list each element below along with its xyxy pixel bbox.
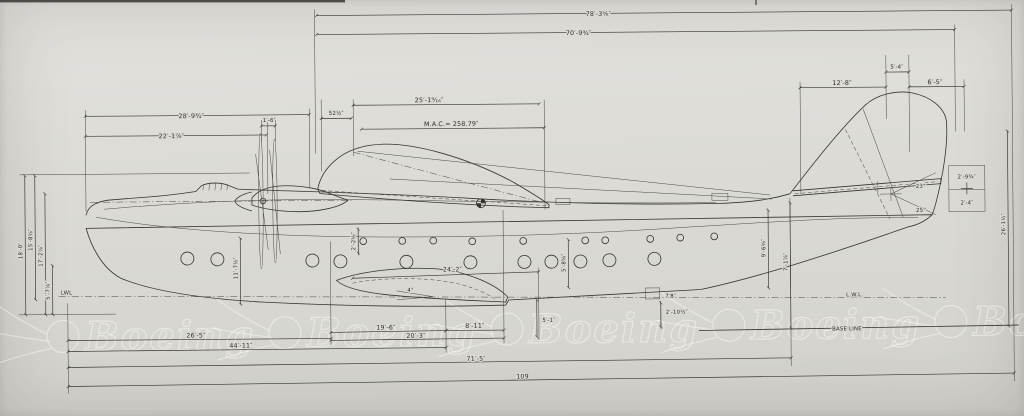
hull-chine-line: [96, 211, 918, 240]
dim-label: 2′-4″: [960, 200, 973, 206]
sponson-stub-float: [336, 268, 507, 304]
dim-label: 7′-1⅞″: [783, 253, 789, 272]
dim-root-chord: 25′-1⁹⁄₁₆″: [353, 96, 539, 105]
dim-rudder-chord: 6′-5″: [909, 79, 964, 87]
dim-left-height-15: 15′-8⅝″: [28, 176, 36, 300]
dim-label: 17′-2⅞″: [38, 245, 44, 267]
dim-fin-chord-upper: 5′-4″: [886, 64, 909, 72]
dim-hull-top: 70′-9¾″: [317, 27, 955, 39]
dim-label: 5′-1″: [542, 318, 555, 324]
deck-edge-line: [104, 196, 716, 209]
dim-label: 11′-7½″: [232, 257, 239, 279]
far-wing-leading-edge: [358, 148, 770, 198]
base-line-label: BASE LINE: [832, 326, 862, 332]
angle-label: 4°: [407, 288, 414, 294]
dim-draft: 5′-7⅞″: [45, 266, 52, 315]
dim-hull-depth-mid: 5′-8⅝″: [561, 240, 568, 288]
dim-label: 24′-2″: [443, 266, 463, 273]
dim-fin-base: 12′-8″: [800, 80, 886, 88]
aircraft-side-view: [85, 92, 948, 309]
wing-chord-line: [322, 189, 547, 208]
vertical-fin: [789, 92, 947, 216]
dim-label: 15′-8⅝″: [28, 229, 34, 251]
dim-mac: M.A.C.= 258.79″: [361, 120, 544, 129]
drawing-canvas: Boeing Boeing Boeing Boeing Boeing: [0, 0, 1024, 416]
rudder-hinge-line: [863, 109, 903, 217]
dim-label: 22′-1⅞″: [159, 133, 185, 140]
dim-label: 25′-1⁹⁄₁₆″: [415, 97, 444, 104]
dim-label: 20′-3″: [406, 333, 426, 340]
aft-deck-hatch: [712, 193, 728, 200]
dim-label: 9′-6⅝″: [761, 239, 767, 258]
dim-label: 78′-3⅝″: [586, 11, 612, 18]
dim-label: 8′-11″: [465, 323, 485, 330]
dim-label: 52½″: [329, 110, 344, 117]
hull-outline: [86, 177, 933, 309]
dim-label: 2′-9¾″: [958, 174, 977, 180]
dim-label: 1′-6″: [263, 118, 276, 124]
dim-tail-height-inner: 9′-6⅝″: [761, 210, 769, 288]
blueprint-scan: Boeing Boeing Boeing Boeing Boeing: [0, 0, 1024, 416]
watermark-text: Boeing: [84, 312, 256, 360]
watermark-text: Boeing: [972, 297, 1024, 345]
dim-label: 44′-11″: [229, 343, 253, 350]
porthole-row-lower: [181, 248, 661, 271]
scan-edge-artifacts: [0, 0, 757, 5]
dim-label: 2′-10½″: [666, 309, 688, 316]
dim-prop-spacing: 1′-6″: [261, 118, 276, 142]
dim-label: 5′-8⅝″: [561, 253, 567, 272]
engine-nacelle: [89, 132, 352, 270]
deck-hatch: [556, 199, 570, 205]
dim-label: 26′-5″: [186, 332, 206, 339]
dim-label: 2′-2⅝″: [351, 232, 357, 251]
dim-label: 71′-5″: [467, 356, 487, 363]
cg-symbol: [476, 199, 485, 208]
elevator-deflection-angles: 23° 25°: [880, 173, 936, 215]
dim-rudder-tab-box: 2′-9¾″ 2′-4″: [949, 165, 985, 211]
dim-label: 109′: [516, 373, 531, 380]
dim-overall-span-top: 78′-3⅝″: [316, 8, 1011, 20]
dim-label: 7′8″: [665, 294, 676, 300]
dim-label: 18′-0″: [18, 242, 24, 259]
dim-wing-le-offset: 52½″: [321, 110, 351, 119]
dim-label: 12′-8″: [832, 80, 852, 87]
dim-left-height-18: 18′-0″: [18, 176, 26, 315]
dim-label: 70′-9¾″: [566, 30, 592, 37]
dim-porthole-offset: 2′-2⅝″: [351, 229, 358, 253]
dim-label: M.A.C.= 258.79″: [424, 121, 479, 128]
waterline-label-left: LWL: [61, 290, 72, 296]
waterline-label-right: L.W.L.: [846, 292, 863, 298]
wing-mac-line: [354, 151, 543, 204]
fin-spar-line: [845, 129, 890, 219]
dim-label: 26′-1½″: [1000, 213, 1007, 235]
dim-hull-depth-fwd: 11′-7½″: [232, 238, 241, 304]
propeller-spinner: [235, 192, 252, 211]
watermark-text: Boeing: [750, 301, 922, 349]
dim-overall-length: 109′: [68, 370, 1014, 387]
dim-left-height-17: 17′-2⅞″: [38, 194, 46, 315]
dim-label: 28′-9¾″: [178, 113, 204, 120]
dim-label: 5′-4″: [890, 64, 903, 70]
dim-sponson-length: 24′-2″: [352, 266, 538, 278]
dim-nose-to-prop: 22′-1⅞″: [85, 132, 266, 140]
angle-label: 25°: [916, 208, 926, 214]
angle-label: 23°: [916, 184, 926, 190]
dim-overall-height-aft: 26′-1½″: [999, 131, 1009, 326]
boeing-watermark: Boeing: [0, 301, 255, 364]
thrust-line: [90, 200, 352, 202]
dim-label: 6′-5″: [927, 79, 943, 86]
dim-label: 19′-6″: [376, 324, 396, 331]
dim-label: 5′-7⅞″: [46, 281, 52, 300]
